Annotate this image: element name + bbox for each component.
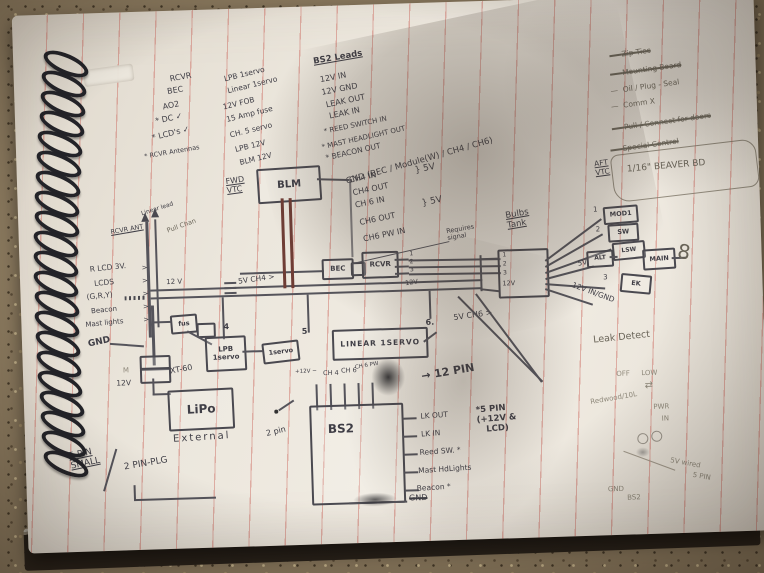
pencil-circle bbox=[651, 431, 662, 442]
ek-box: EK bbox=[620, 273, 653, 295]
xt60-connector-box bbox=[140, 367, 171, 384]
lpb-servo-wire bbox=[242, 350, 262, 353]
ch4-prong bbox=[225, 292, 237, 294]
antenna-wire bbox=[154, 219, 159, 327]
bs2-right-pin-label: Beacon * bbox=[417, 483, 451, 494]
pencil-pwr: PWR bbox=[653, 402, 669, 411]
row-arrow: > bbox=[142, 264, 148, 272]
note-col1-item: * RCVR Antennas bbox=[144, 144, 200, 161]
ch4-prong bbox=[224, 282, 236, 284]
bec-box: BEC bbox=[322, 258, 355, 280]
bs2-right-pin-label: LK OUT bbox=[420, 411, 448, 421]
notebook-page: RCVR BEC AO2 * DC ✓ * LCD's ✓ * RCVR Ant… bbox=[12, 0, 764, 554]
todo-item: Oil / Plug - Seal bbox=[610, 77, 680, 95]
bs2-right-pin bbox=[404, 453, 418, 455]
trunk-wire bbox=[409, 265, 501, 268]
note-col1-item: * DC ✓ bbox=[154, 111, 183, 126]
alt-box: ALT bbox=[586, 250, 614, 269]
fuse-box: fus bbox=[170, 313, 198, 334]
bs2-right-pin bbox=[404, 471, 418, 473]
pencil-bs2: BS2 bbox=[627, 493, 641, 501]
fan-number: 1 bbox=[593, 205, 598, 213]
fan-number: 3 bbox=[603, 273, 608, 281]
rcvr-pin bbox=[395, 272, 409, 274]
note-col1-item: RCVR bbox=[169, 71, 192, 84]
rcvr-ant-label: RCVR ANT bbox=[110, 224, 144, 237]
pull-chan-label: Pull Chan bbox=[166, 218, 197, 235]
spiral-binding bbox=[34, 54, 108, 494]
bs2-top-pin-label: +12V − bbox=[295, 368, 317, 375]
wire-number: 5 bbox=[302, 327, 308, 336]
aft-vtc-label: AFT VTC bbox=[594, 158, 611, 177]
lpb-box: LPB 1servo bbox=[205, 335, 248, 372]
row-arrow: > bbox=[143, 316, 149, 324]
pencil-circle bbox=[637, 433, 648, 444]
twelve-v-label: 12 V bbox=[166, 278, 182, 287]
notebook-photo: RCVR BEC AO2 * DC ✓ * LCD's ✓ * RCVR Ant… bbox=[0, 0, 764, 573]
todo-item: Mounting Board bbox=[609, 60, 681, 79]
fan-number: 2 bbox=[596, 225, 601, 233]
fuse-feed-wire bbox=[151, 321, 171, 324]
rcvr-box: RCVR bbox=[361, 251, 399, 279]
requires-note: Requires signal bbox=[446, 223, 476, 243]
servo-box: 1servo bbox=[261, 339, 300, 364]
twelve-v-label: 12V bbox=[405, 279, 419, 288]
blm-red-wire bbox=[289, 198, 295, 288]
bracket-wire bbox=[134, 497, 216, 502]
todo-item: Zip Ties bbox=[609, 46, 651, 61]
ink-scribble bbox=[371, 358, 406, 397]
bs2-lead-item: 12V IN bbox=[319, 70, 347, 84]
bundle-wire bbox=[475, 293, 542, 382]
m-label: M bbox=[123, 366, 129, 374]
swap-arrows: ⇄ bbox=[644, 380, 653, 392]
two-pin-label: 2 pin bbox=[265, 424, 287, 438]
todo-item: Pull / Connect for doors bbox=[611, 111, 711, 133]
brace-5v: } 5V bbox=[421, 195, 443, 209]
lsw-box: LSW bbox=[612, 240, 647, 261]
antenna-arrowhead bbox=[151, 208, 159, 217]
wire-number: 6. bbox=[425, 318, 434, 327]
row-arrow: > bbox=[143, 303, 149, 311]
bs2-lead-item: CH 6 IN bbox=[354, 195, 385, 210]
sw-box: SW bbox=[607, 223, 639, 243]
gnd-wire bbox=[110, 343, 144, 347]
blm-red-wire bbox=[281, 198, 287, 288]
five-pin-note: *5 PIN (+12V & LCD) bbox=[475, 403, 517, 436]
fwd-vtc-label: FWD VTC bbox=[225, 175, 246, 196]
note-col1-item: BEC bbox=[166, 84, 183, 96]
linear-servo-box: LINEAR 1SERVO bbox=[332, 327, 429, 361]
rcvr-pin bbox=[395, 258, 409, 260]
pin-number: 1 bbox=[409, 251, 413, 258]
two-pin-plg-label: 2 PIN-PLG bbox=[123, 455, 168, 473]
bs2-right-pin bbox=[403, 435, 417, 437]
pencil-off: OFF bbox=[616, 370, 630, 378]
antenna-arrowhead bbox=[141, 213, 149, 222]
bow-symbol: 8 bbox=[676, 240, 693, 265]
twelve-pin-label: → 12 PIN bbox=[420, 362, 475, 384]
bs2-lead-item: CH6 OUT bbox=[359, 211, 396, 227]
note-col2-item: BLM 12V bbox=[239, 151, 273, 167]
ch6-drop-wire bbox=[429, 291, 432, 319]
xt60-label: XT-60 bbox=[169, 363, 193, 376]
pencil-in: IN bbox=[662, 414, 670, 422]
row-arrow: > bbox=[142, 277, 148, 285]
bs2-lead-item: CH6 PW IN bbox=[362, 226, 406, 244]
bs2-top-pin-label: CH 4 bbox=[323, 370, 339, 378]
bs2-gnd-label: GND bbox=[409, 493, 428, 503]
note-col1-item: AO2 bbox=[162, 99, 180, 111]
page-content: RCVR BEC AO2 * DC ✓ * LCD's ✓ * RCVR Ant… bbox=[0, 0, 764, 573]
alt-lsw-wire bbox=[610, 256, 618, 258]
ch4-prong bbox=[224, 287, 236, 289]
bs2-right-pin bbox=[403, 417, 417, 419]
pencil-5v-wired: 5V wired bbox=[670, 456, 702, 469]
pin-number: 3 bbox=[503, 270, 507, 277]
two-pin-arrow bbox=[278, 400, 294, 412]
bs2-right-pin-label: Reed SW. * bbox=[419, 446, 461, 457]
pencil-redwood: Redwood/10L bbox=[590, 390, 638, 406]
twelve-v-label: 12V bbox=[502, 280, 515, 288]
five-v-label: 5V bbox=[577, 258, 587, 268]
external-label: External bbox=[173, 430, 231, 445]
rcvr-pin bbox=[395, 265, 409, 267]
note-col2-item: CH. 5 servo bbox=[229, 121, 273, 140]
pencil-5pin: 5 PIN bbox=[692, 471, 711, 482]
todo-item: Comm X bbox=[610, 96, 655, 111]
pin-number: 1 bbox=[502, 252, 506, 259]
bracket-wire bbox=[134, 485, 136, 500]
ink-scribble bbox=[353, 492, 397, 507]
blm-top-wire bbox=[317, 178, 349, 181]
row-arrow: > bbox=[142, 290, 148, 298]
twelve-v-in-gnd-label: 12V IN/GND bbox=[571, 281, 616, 304]
bs2-leads-title: BS2 Leads bbox=[313, 49, 363, 67]
trunk-wire bbox=[409, 272, 501, 275]
lpb-drop-wire bbox=[222, 297, 225, 339]
lipo-box: LiPo bbox=[167, 387, 235, 431]
wire-number: 4 bbox=[223, 322, 229, 331]
bs2-box: BS2 bbox=[309, 403, 406, 506]
pencil-low: LOW bbox=[641, 369, 657, 378]
pencil-gnd: GND bbox=[608, 485, 624, 494]
pin-number: 2 bbox=[503, 261, 507, 268]
bs2-right-pin-label: LK IN bbox=[421, 429, 441, 439]
note-col1-item: * LCD's ✓ bbox=[151, 124, 190, 142]
bs2-right-pin-label: Mast HdLights bbox=[418, 464, 472, 476]
leak-detect-label: Leak Detect bbox=[593, 330, 651, 347]
five-v-ch4-label: 5V CH4 > bbox=[238, 273, 275, 287]
twelve-v-label: 12V bbox=[116, 379, 131, 388]
tank-feed-wire bbox=[480, 288, 499, 292]
bulbs-tank-label: Bulbs Tank bbox=[505, 208, 531, 231]
